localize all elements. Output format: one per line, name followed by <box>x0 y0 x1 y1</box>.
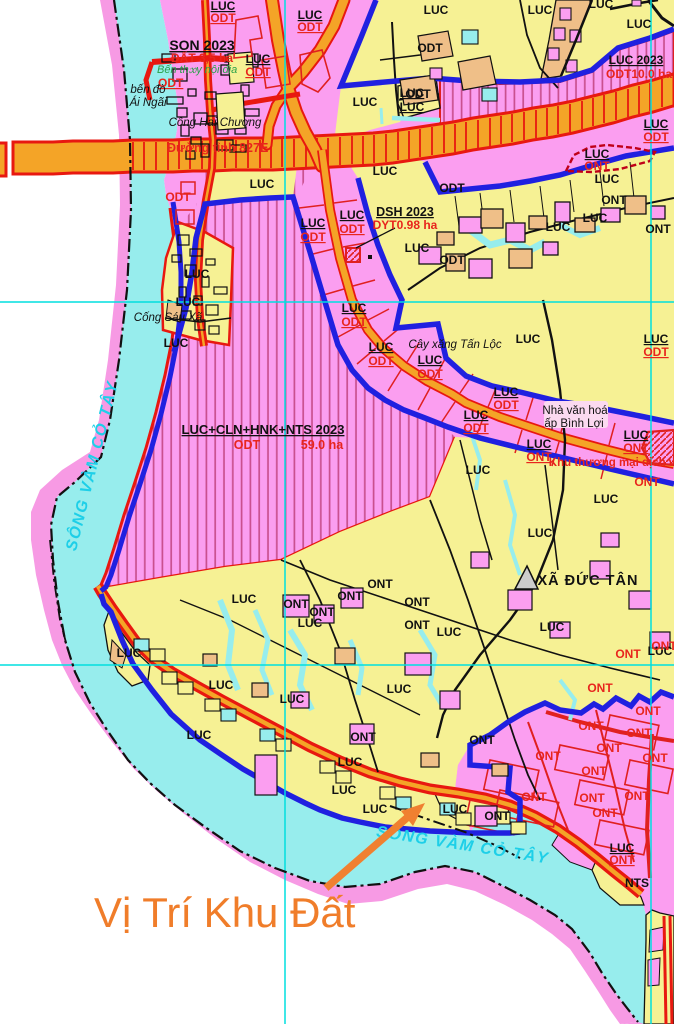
svg-text:LUC: LUC <box>342 301 367 315</box>
svg-text:ODT: ODT <box>210 11 236 25</box>
svg-text:ONT: ONT <box>404 618 430 632</box>
svg-text:Khu thương mại dịch v: Khu thương mại dịch v <box>549 457 674 469</box>
svg-text:Vị Trí Khu Đất: Vị Trí Khu Đất <box>94 889 356 936</box>
svg-text:LUC: LUC <box>405 241 430 255</box>
svg-text:ONT: ONT <box>651 639 674 653</box>
svg-text:LUC: LUC <box>583 211 608 225</box>
svg-text:LUC: LUC <box>644 117 669 131</box>
svg-text:LUC: LUC <box>424 3 449 17</box>
svg-text:ODT: ODT <box>417 367 443 381</box>
svg-text:ONT: ONT <box>635 704 661 718</box>
svg-text:LUC: LUC <box>164 336 189 350</box>
svg-text:ODT: ODT <box>368 354 394 368</box>
svg-text:ODT: ODT <box>245 65 271 79</box>
svg-text:LUC: LUC <box>340 208 365 222</box>
svg-text:ONT: ONT <box>581 764 607 778</box>
svg-text:LUC: LUC <box>528 3 553 17</box>
svg-text:LUC+CLN+HNK+NTS 2023: LUC+CLN+HNK+NTS 2023 <box>182 422 345 437</box>
svg-text:LUC: LUC <box>187 728 212 742</box>
svg-text:Cây xăng Tấn Lộc: Cây xăng Tấn Lộc <box>408 339 502 351</box>
svg-text:ONT: ONT <box>609 853 635 867</box>
svg-text:59.0 ha: 59.0 ha <box>301 438 344 452</box>
svg-text:Ái Ngãi: Ái Ngãi <box>128 96 167 109</box>
svg-text:ONT: ONT <box>601 193 627 207</box>
svg-text:LUC: LUC <box>280 692 305 706</box>
svg-text:bến đò: bến đò <box>130 84 166 96</box>
svg-text:LUC: LUC <box>644 332 669 346</box>
svg-text:ONT: ONT <box>592 806 618 820</box>
svg-text:LUC: LUC <box>437 625 462 639</box>
svg-text:ONT: ONT <box>584 159 610 173</box>
svg-text:ODT: ODT <box>165 190 191 204</box>
svg-text:ONT: ONT <box>624 789 650 803</box>
svg-text:LUC: LUC <box>332 783 357 797</box>
svg-text:LUC: LUC <box>627 17 652 31</box>
svg-text:ODT: ODT <box>339 222 365 236</box>
svg-text:ONT: ONT <box>615 647 641 661</box>
svg-text:LUC: LUC <box>400 86 425 100</box>
svg-text:ONT: ONT <box>587 681 613 695</box>
svg-text:LUC: LUC <box>494 385 519 399</box>
svg-text:ONT: ONT <box>350 730 376 744</box>
svg-text:LUC: LUC <box>176 295 201 309</box>
svg-text:LUC: LUC <box>595 172 620 186</box>
svg-text:ONT: ONT <box>623 441 649 455</box>
svg-text:ấp Bình Lợi: ấp Bình Lợi <box>544 418 603 430</box>
svg-text:ODT: ODT <box>341 315 367 329</box>
svg-text:ODT: ODT <box>417 41 443 55</box>
svg-text:ONT: ONT <box>484 809 510 823</box>
svg-text:LUC: LUC <box>594 492 619 506</box>
svg-text:ODT10.0 ha: ODT10.0 ha <box>606 67 672 81</box>
svg-text:ONT: ONT <box>337 589 363 603</box>
svg-text:Đường tỉnh 827E: Đường tỉnh 827E <box>167 141 268 155</box>
svg-text:LUC: LUC <box>232 592 257 606</box>
svg-text:ODT: ODT <box>439 253 465 267</box>
svg-text:LUC: LUC <box>546 220 571 234</box>
svg-text:Cống Hai Chương: Cống Hai Chương <box>169 117 262 129</box>
svg-text:LUC: LUC <box>466 463 491 477</box>
svg-text:ONT: ONT <box>596 741 622 755</box>
svg-text:LUC: LUC <box>527 437 552 451</box>
svg-text:ĐẤT 3,5 ha: ĐẤT 3,5 ha <box>171 50 233 65</box>
svg-text:ONT: ONT <box>404 595 430 609</box>
svg-text:ODT: ODT <box>493 398 519 412</box>
svg-text:Bến thᤑy nội địa: Bến thᤑy nội địa <box>157 64 237 76</box>
svg-text:DYT0.98 ha: DYT0.98 ha <box>373 218 438 232</box>
svg-text:ONT: ONT <box>642 751 668 765</box>
svg-text:ONT: ONT <box>367 577 393 591</box>
svg-text:LUC: LUC <box>209 678 234 692</box>
svg-text:LUC: LUC <box>338 755 363 769</box>
svg-text:ODT: ODT <box>439 181 465 195</box>
svg-text:ONT: ONT <box>521 790 547 804</box>
svg-text:LUC: LUC <box>400 100 425 114</box>
svg-text:ODT: ODT <box>643 130 669 144</box>
svg-text:ODT: ODT <box>643 345 669 359</box>
svg-text:LUC: LUC <box>418 353 443 367</box>
svg-text:ONT: ONT <box>469 733 495 747</box>
svg-text:LUC: LUC <box>353 95 378 109</box>
svg-text:LUC: LUC <box>464 408 489 422</box>
svg-text:LUC: LUC <box>369 340 394 354</box>
svg-text:LUC: LUC <box>540 620 565 634</box>
svg-text:LUC: LUC <box>185 267 210 281</box>
svg-text:ONT: ONT <box>579 791 605 805</box>
svg-text:LUC: LUC <box>298 616 323 630</box>
svg-text:LUC: LUC <box>443 802 468 816</box>
svg-text:LUC: LUC <box>301 216 326 230</box>
svg-text:LUC: LUC <box>624 428 649 442</box>
svg-text:LUC: LUC <box>373 164 398 178</box>
svg-text:XÃ ĐỨC TÂN: XÃ ĐỨC TÂN <box>538 571 639 589</box>
svg-text:ONT: ONT <box>626 726 652 740</box>
svg-text:ONT: ONT <box>645 222 671 236</box>
svg-text:ONT: ONT <box>634 475 660 489</box>
svg-text:Nhà văn hoá: Nhà văn hoá <box>542 405 608 417</box>
svg-text:ONT: ONT <box>283 597 309 611</box>
svg-text:Cống Sáu Xã: Cống Sáu Xã <box>134 312 203 324</box>
svg-text:ODT: ODT <box>300 230 326 244</box>
svg-text:ONT: ONT <box>535 749 561 763</box>
svg-text:LUC: LUC <box>589 0 614 11</box>
svg-text:LUC: LUC <box>387 682 412 696</box>
svg-text:ODT: ODT <box>463 421 489 435</box>
svg-text:LUC: LUC <box>246 52 271 66</box>
svg-text:LUC 2023: LUC 2023 <box>609 53 664 67</box>
svg-text:LUC: LUC <box>363 802 388 816</box>
svg-text:ODT: ODT <box>297 20 323 34</box>
svg-text:LUC: LUC <box>117 646 142 660</box>
svg-text:ODT: ODT <box>234 438 261 452</box>
svg-text:LUC: LUC <box>250 177 275 191</box>
svg-text:LUC: LUC <box>528 526 553 540</box>
svg-text:LUC: LUC <box>516 332 541 346</box>
svg-text:NTS: NTS <box>625 876 649 890</box>
svg-text:DSH 2023: DSH 2023 <box>376 205 434 219</box>
svg-text:ONT: ONT <box>578 719 604 733</box>
